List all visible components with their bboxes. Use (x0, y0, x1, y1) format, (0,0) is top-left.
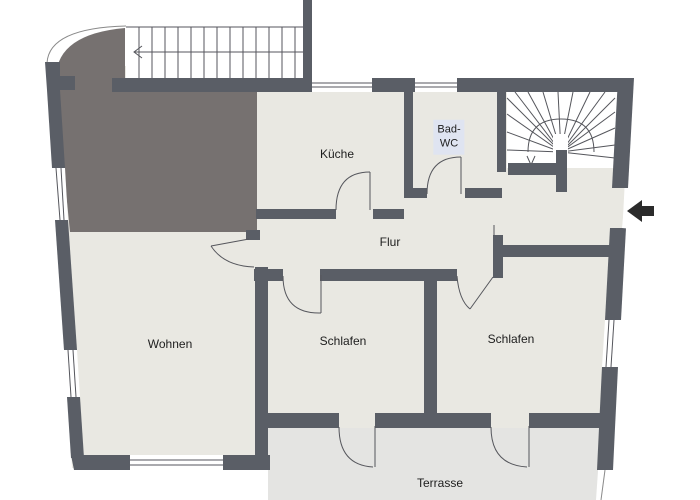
room-label-schlafen-2: Schlafen (488, 332, 535, 346)
window (312, 79, 372, 92)
room-label-bad-wc: Bad- WC (433, 120, 464, 155)
room-label-terrasse: Terrasse (417, 476, 463, 490)
window (415, 79, 457, 92)
room-label-bad-wc-line1: Bad- (437, 124, 460, 136)
entrance-door (622, 188, 666, 232)
window (130, 455, 223, 470)
window (602, 320, 621, 367)
room-label-bad-wc-line2: WC (440, 138, 458, 150)
room-label-wohnen: Wohnen (148, 337, 192, 351)
floor-plan-drawing (0, 0, 700, 500)
room-label-flur: Flur (380, 235, 401, 249)
floor-plan: Küche Bad- WC Flur Wohnen Schlafen Schla… (0, 0, 700, 500)
room-label-kueche: Küche (320, 147, 354, 161)
room-label-schlafen-1: Schlafen (320, 334, 367, 348)
straight-staircase (126, 26, 303, 78)
